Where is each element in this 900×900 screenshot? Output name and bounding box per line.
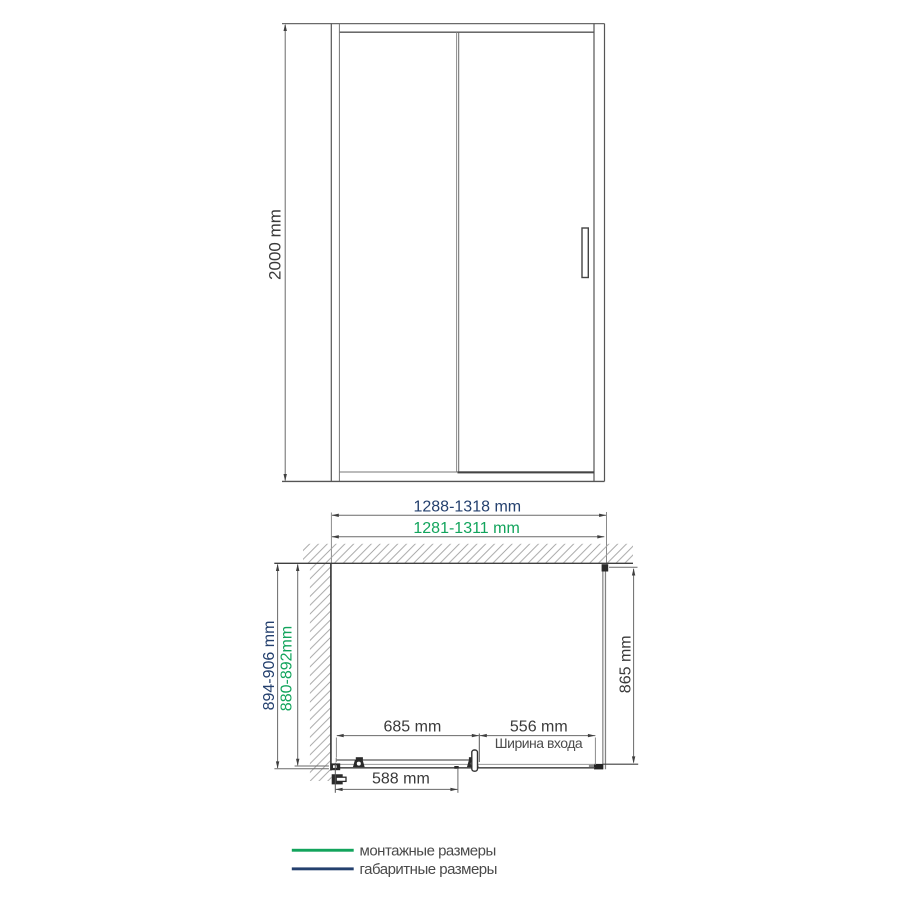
svg-text:габаритные размеры: габаритные размеры	[360, 861, 497, 878]
svg-text:865 mm: 865 mm	[618, 635, 635, 693]
svg-text:880-892mm: 880-892mm	[278, 626, 295, 711]
svg-text:588 mm: 588 mm	[372, 771, 430, 788]
svg-text:монтажные размеры: монтажные размеры	[360, 842, 496, 859]
svg-text:685 mm: 685 mm	[384, 719, 442, 736]
svg-text:2000 mm: 2000 mm	[266, 209, 285, 280]
svg-text:1288-1318 mm: 1288-1318 mm	[413, 499, 521, 516]
svg-text:Ширина входа: Ширина входа	[495, 735, 583, 751]
svg-text:556 mm: 556 mm	[510, 719, 568, 736]
svg-text:1281-1311 mm: 1281-1311 mm	[413, 520, 519, 537]
svg-text:894-906 mm: 894-906 mm	[261, 621, 278, 711]
